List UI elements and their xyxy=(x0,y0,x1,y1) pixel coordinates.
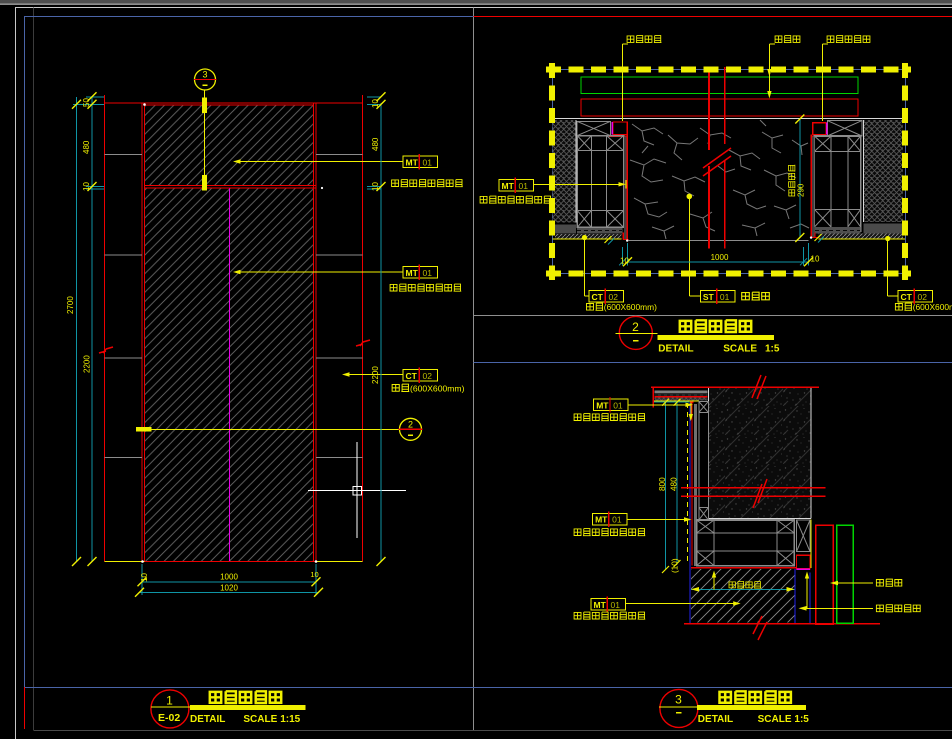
svg-text:10: 10 xyxy=(82,182,91,191)
svg-text:01: 01 xyxy=(720,292,730,302)
svg-text:CT: CT xyxy=(901,292,913,302)
svg-text:1:5: 1:5 xyxy=(794,714,809,725)
svg-text:(600X600mm): (600X600mm) xyxy=(913,302,952,312)
svg-text:SCALE: SCALE xyxy=(723,344,757,355)
svg-text:CT: CT xyxy=(406,371,418,381)
svg-text:02: 02 xyxy=(423,371,433,381)
svg-text:MT: MT xyxy=(594,600,607,610)
svg-text:01: 01 xyxy=(611,600,621,610)
svg-text:01: 01 xyxy=(519,181,529,191)
svg-text:2200: 2200 xyxy=(83,355,92,373)
svg-text:SCALE: SCALE xyxy=(243,714,277,725)
svg-text:MT: MT xyxy=(596,400,609,410)
svg-text:02: 02 xyxy=(609,292,619,302)
svg-text:01: 01 xyxy=(423,268,433,278)
svg-text:10: 10 xyxy=(371,99,380,108)
svg-text:CT: CT xyxy=(592,292,604,302)
svg-text:3: 3 xyxy=(675,693,682,707)
svg-text:DETAIL: DETAIL xyxy=(190,714,225,725)
svg-text:(600X600mm): (600X600mm) xyxy=(410,384,465,394)
svg-text:50: 50 xyxy=(82,98,91,107)
svg-text:290: 290 xyxy=(797,183,806,197)
svg-text:2: 2 xyxy=(632,320,639,334)
svg-text:1020: 1020 xyxy=(220,584,238,593)
svg-text:MT: MT xyxy=(406,157,419,167)
svg-text:1: 1 xyxy=(166,694,173,708)
svg-text:DETAIL: DETAIL xyxy=(658,344,693,355)
svg-text:MT: MT xyxy=(406,268,419,278)
svg-text:2200: 2200 xyxy=(371,366,380,384)
svg-text:10: 10 xyxy=(310,570,318,579)
svg-text:480: 480 xyxy=(82,140,91,154)
svg-text:10: 10 xyxy=(140,573,149,582)
svg-text:10: 10 xyxy=(811,255,820,264)
svg-text:ST: ST xyxy=(703,292,715,302)
svg-text:480: 480 xyxy=(670,477,679,491)
svg-text:DETAIL: DETAIL xyxy=(698,714,733,725)
svg-text:480: 480 xyxy=(371,137,380,151)
svg-text:SCALE: SCALE xyxy=(758,714,792,725)
svg-text:2700: 2700 xyxy=(66,296,75,314)
svg-text:MT: MT xyxy=(595,515,608,525)
svg-text:1:15: 1:15 xyxy=(280,714,300,725)
svg-text:01: 01 xyxy=(613,400,623,410)
svg-text:(600X600mm): (600X600mm) xyxy=(604,302,657,312)
svg-text:01: 01 xyxy=(612,515,622,525)
svg-text:800: 800 xyxy=(658,477,667,491)
svg-text:1000: 1000 xyxy=(711,253,729,262)
svg-text:E-02: E-02 xyxy=(158,712,180,724)
svg-text:MT: MT xyxy=(502,181,515,191)
svg-text:02: 02 xyxy=(918,292,928,302)
svg-text:2: 2 xyxy=(408,419,413,429)
svg-text:10: 10 xyxy=(620,257,629,266)
svg-text:01: 01 xyxy=(423,157,433,167)
svg-text:1000: 1000 xyxy=(220,573,238,582)
svg-text:10: 10 xyxy=(371,182,380,191)
svg-text:1:5: 1:5 xyxy=(765,344,780,355)
svg-text:3: 3 xyxy=(202,70,207,80)
